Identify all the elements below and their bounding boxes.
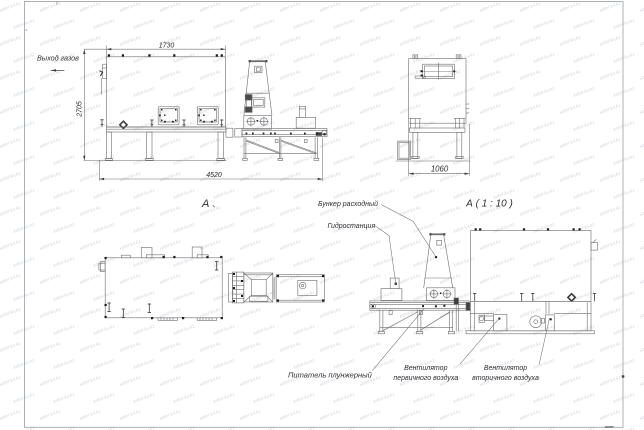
svg-text:А: А [201,198,209,210]
svg-text:Вентилятор: Вентилятор [484,365,527,372]
svg-text:первичного воздуха: первичного воздуха [393,374,458,382]
svg-text:4520: 4520 [206,172,222,179]
svg-text:Бункер расходный: Бункер расходный [318,200,378,208]
svg-text:Вентилятор: Вентилятор [404,365,447,372]
svg-text:Гидростанция: Гидростанция [328,222,376,230]
svg-text:1730: 1730 [159,43,175,50]
svg-text:Питатель плунжерный: Питатель плунжерный [288,370,373,379]
svg-text:1060: 1060 [431,165,449,174]
svg-text:2705: 2705 [77,101,84,118]
svg-text:А ( 1 : 10 ): А ( 1 : 10 ) [465,199,513,210]
svg-text:Выход газов: Выход газов [37,54,79,63]
svg-text:вторичного воздуха: вторичного воздуха [472,374,539,382]
